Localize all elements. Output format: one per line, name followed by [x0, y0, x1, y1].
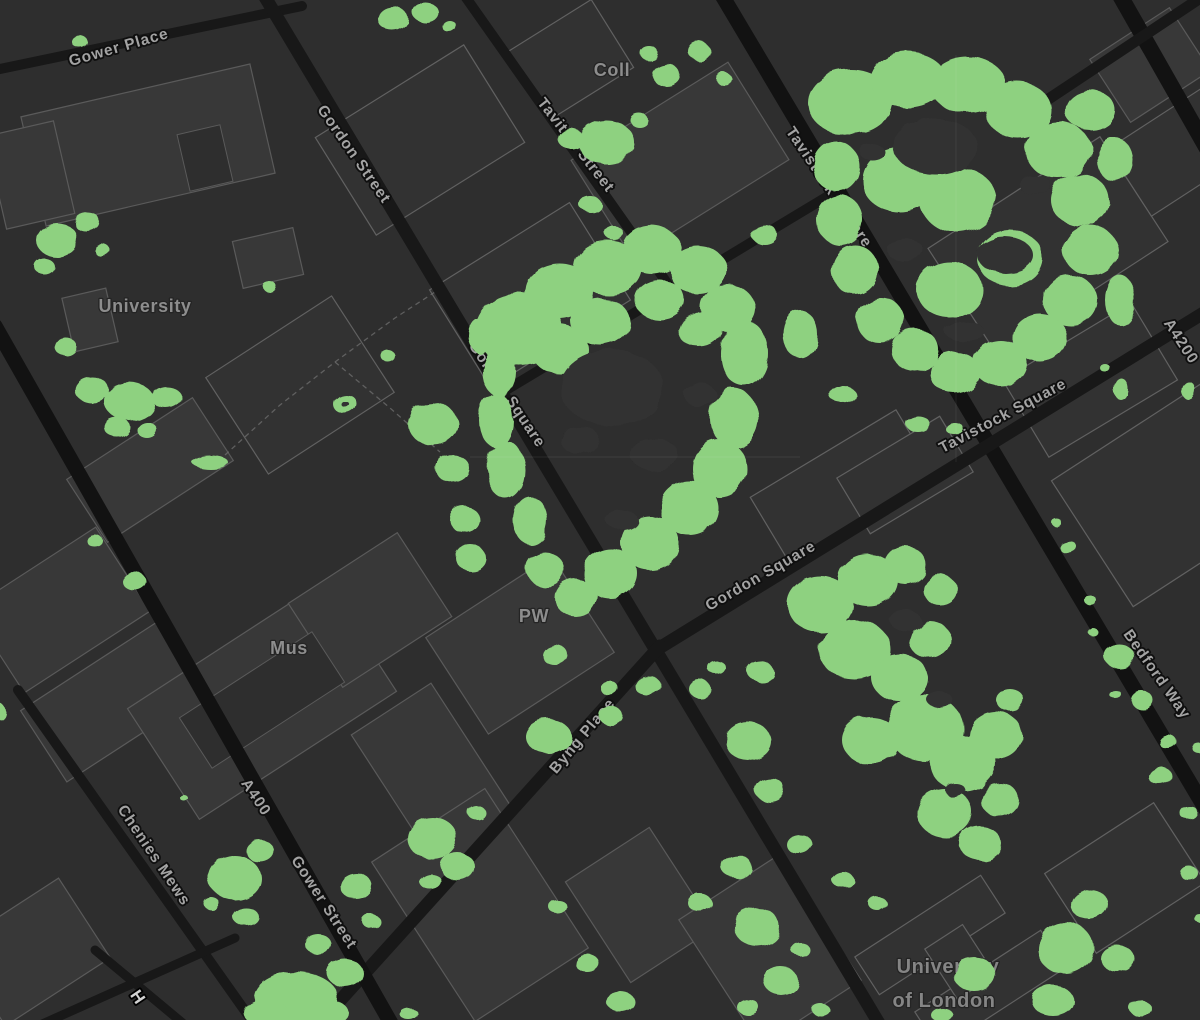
canopy-blob [722, 855, 752, 879]
canopy-blob [1105, 275, 1135, 325]
canopy-blob [725, 722, 771, 760]
canopy-blob [791, 942, 809, 956]
canopy-blob [755, 778, 785, 802]
canopy-blob [1131, 691, 1153, 709]
canopy-blob [710, 389, 758, 447]
canopy-blob [513, 496, 547, 544]
canopy-blob [764, 967, 798, 995]
canopy-blob [1159, 735, 1177, 749]
canopy-blob [688, 894, 712, 912]
canopy-blob [1129, 1000, 1151, 1016]
canopy-hole [560, 426, 600, 454]
canopy-blob [946, 423, 964, 435]
canopy-blob [891, 329, 939, 371]
canopy-blob [548, 899, 566, 913]
canopy-blob [1059, 541, 1077, 553]
canopy-hole [631, 439, 679, 471]
canopy-blob [233, 908, 259, 926]
canopy-blob [443, 21, 457, 33]
canopy-blob [576, 955, 600, 973]
canopy-blob [716, 73, 732, 85]
map-label-pw: PW [519, 606, 549, 626]
canopy-blob [558, 129, 584, 149]
canopy-blob [1113, 377, 1127, 399]
canopy-blob [407, 817, 457, 859]
map-canvas[interactable]: Gower PlaceGordon StreetTaviton StreetTa… [0, 0, 1200, 1020]
canopy-hole [945, 783, 965, 797]
canopy-blob [263, 282, 277, 292]
canopy-blob [817, 195, 863, 245]
canopy-blob [542, 645, 568, 665]
canopy-hole [560, 350, 664, 426]
canopy-blob [527, 553, 565, 587]
canopy-blob [1051, 174, 1109, 226]
canopy-blob [1065, 90, 1115, 130]
canopy-blob [678, 312, 722, 348]
canopy-blob [1097, 138, 1133, 182]
canopy-blob [1084, 595, 1096, 605]
canopy-blob [413, 3, 439, 23]
map-label-mus: Mus [270, 638, 308, 658]
canopy-blob [105, 383, 155, 421]
canopy-blob [635, 676, 661, 696]
canopy-blob [479, 393, 513, 447]
canopy-blob [653, 65, 681, 87]
canopy-blob [408, 403, 458, 445]
canopy-blob [1063, 225, 1117, 275]
canopy-blob [1051, 518, 1061, 526]
canopy-blob [917, 789, 973, 837]
canopy-blob [968, 711, 1022, 759]
canopy-blob [842, 716, 898, 764]
canopy-hole [889, 610, 921, 630]
canopy-blob [787, 835, 813, 855]
canopy-hole [1019, 175, 1051, 195]
canopy-blob [954, 958, 996, 992]
canopy-hole [684, 383, 716, 407]
canopy-blob [869, 897, 887, 911]
canopy-blob [641, 47, 659, 61]
canopy-blob [482, 348, 516, 396]
canopy-blob [1105, 645, 1135, 669]
canopy-blob [440, 852, 474, 880]
canopy-blob [152, 387, 182, 409]
canopy-blob [180, 795, 188, 801]
canopy-blob [74, 212, 100, 232]
canopy-blob [996, 689, 1024, 711]
canopy-blob [1025, 122, 1091, 178]
canopy-blob [734, 908, 780, 946]
canopy-blob [707, 660, 725, 674]
map-svg[interactable]: Gower PlaceGordon StreetTaviton StreetTa… [0, 0, 1200, 1020]
canopy-blob [1071, 890, 1109, 920]
canopy-blob [598, 706, 622, 724]
canopy-hole [859, 144, 885, 160]
canopy-blob [720, 320, 768, 386]
canopy-blob [419, 873, 441, 889]
canopy-blob [75, 377, 109, 403]
map-label-university: University [98, 296, 191, 316]
canopy-blob [363, 915, 381, 929]
canopy-blob [1088, 628, 1098, 636]
canopy-blob [104, 417, 130, 437]
canopy-blob [923, 575, 957, 605]
canopy-blob [872, 654, 928, 702]
canopy-hole [927, 692, 953, 708]
canopy-blob [435, 454, 469, 482]
canopy-blob [811, 1003, 829, 1015]
canopy-blob [1181, 867, 1199, 881]
canopy-blob [606, 991, 634, 1011]
canopy-blob [752, 225, 778, 245]
canopy-blob [1100, 945, 1134, 971]
canopy-blob [906, 416, 930, 432]
canopy-blob [246, 840, 274, 862]
canopy-hole [893, 118, 977, 174]
canopy-blob [94, 244, 110, 256]
canopy-blob [973, 340, 1027, 386]
canopy-blob [578, 120, 634, 164]
canopy-blob [378, 7, 408, 31]
canopy-blob [399, 1007, 417, 1019]
canopy-blob [36, 223, 78, 257]
canopy-hole [341, 401, 349, 407]
canopy-hole [887, 238, 923, 262]
canopy-blob [122, 572, 146, 590]
canopy-blob [829, 385, 855, 403]
canopy-blob [930, 352, 980, 394]
canopy-blob [1110, 691, 1122, 699]
canopy-blob [832, 245, 878, 295]
canopy-blob [783, 310, 817, 358]
canopy-blob [138, 423, 158, 439]
canopy-blob [449, 506, 479, 532]
canopy-blob [959, 826, 1001, 860]
canopy-blob [579, 196, 601, 212]
canopy-blob [917, 262, 983, 318]
canopy-blob [72, 36, 88, 48]
canopy-blob [1179, 805, 1197, 819]
canopy-blob [689, 680, 711, 698]
canopy-blob [629, 112, 647, 126]
canopy-hole [606, 510, 638, 530]
canopy-blob [35, 259, 55, 275]
canopy-blob [55, 338, 77, 356]
canopy-blob [192, 455, 228, 469]
canopy-blob [688, 42, 710, 60]
canopy-blob [469, 319, 491, 353]
canopy-blob [487, 441, 525, 499]
canopy-blob [606, 227, 624, 241]
canopy-blob [831, 871, 853, 887]
canopy-hole [945, 323, 985, 341]
canopy-blob [340, 873, 372, 899]
canopy-blob [203, 897, 219, 909]
canopy-blob [1181, 381, 1195, 399]
canopy-blob [572, 298, 630, 346]
canopy-blob [920, 167, 996, 233]
canopy-hole [977, 237, 1033, 273]
map-label-coll: Coll [594, 60, 630, 80]
canopy-blob [1031, 985, 1073, 1015]
canopy-blob [208, 855, 260, 899]
canopy-blob [381, 350, 395, 362]
canopy-blob [327, 959, 363, 987]
canopy-blob [813, 141, 859, 191]
canopy-blob [601, 682, 619, 696]
canopy-blob [635, 280, 685, 320]
canopy-blob [747, 661, 773, 681]
canopy-blob [525, 719, 571, 753]
canopy-blob [884, 546, 926, 584]
canopy-blob [555, 579, 597, 617]
canopy-blob [1100, 364, 1110, 372]
canopy-blob [981, 783, 1019, 817]
canopy-blob [305, 934, 331, 954]
canopy-blob [87, 535, 103, 547]
canopy-blob [468, 806, 486, 820]
canopy-blob [1148, 767, 1172, 785]
canopy-blob [1037, 922, 1093, 974]
canopy-blob [737, 999, 759, 1015]
canopy-blob [455, 544, 485, 570]
canopy-blob [856, 297, 904, 343]
